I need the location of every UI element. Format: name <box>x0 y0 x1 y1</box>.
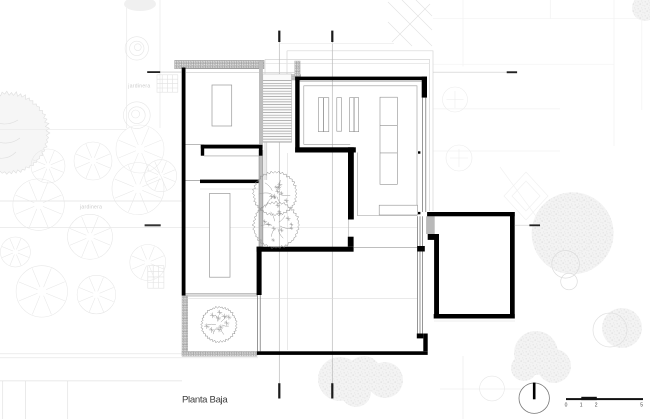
svg-text:5: 5 <box>640 402 643 408</box>
svg-text:jardinera: jardinera <box>79 205 102 211</box>
svg-text:1: 1 <box>580 402 583 408</box>
svg-text:0: 0 <box>565 402 568 408</box>
svg-text:Planta Baja: Planta Baja <box>182 395 228 406</box>
svg-text:2: 2 <box>595 402 598 408</box>
svg-text:jardinera: jardinera <box>127 84 150 90</box>
